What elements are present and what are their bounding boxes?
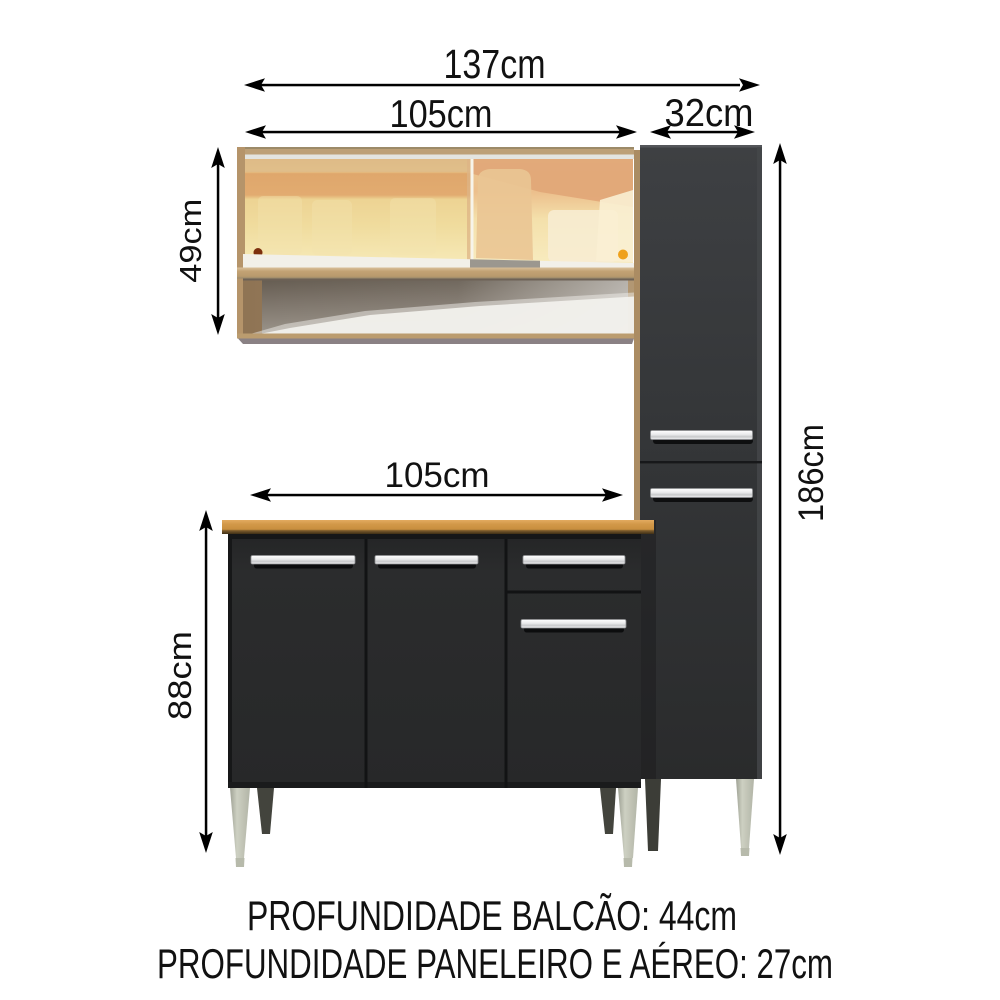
svg-text:PROFUNDIDADE BALCÃO: 44cm: PROFUNDIDADE BALCÃO: 44cm bbox=[247, 892, 737, 939]
svg-text:105cm: 105cm bbox=[385, 456, 490, 495]
svg-text:49cm: 49cm bbox=[173, 199, 208, 283]
svg-text:137cm: 137cm bbox=[444, 41, 546, 87]
svg-text:186cm: 186cm bbox=[792, 424, 831, 522]
svg-text:PROFUNDIDADE PANELEIRO E AÉREO: PROFUNDIDADE PANELEIRO E AÉREO: 27cm bbox=[157, 940, 833, 987]
svg-text:88cm: 88cm bbox=[162, 631, 198, 720]
svg-text:105cm: 105cm bbox=[390, 93, 493, 136]
